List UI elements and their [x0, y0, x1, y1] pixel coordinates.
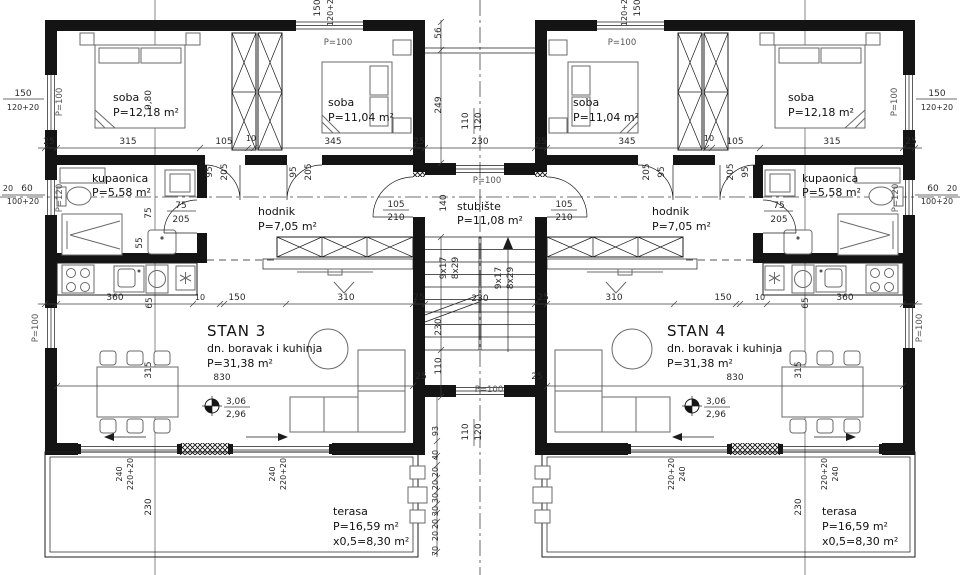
room-label-soba-right-outer: soba [788, 91, 814, 104]
dim-left-315: 315 [144, 361, 154, 378]
level-lower-left: 2,96 [226, 410, 246, 420]
room-area-soba-right-inner: P=11,04 m² [573, 111, 639, 124]
slider-size-left2-h: 220+20 [279, 458, 288, 490]
dim-top-l-105: 105 [215, 137, 232, 147]
dim-section-980: 9,80 [144, 90, 154, 110]
room-label-terasa-right: terasa [822, 505, 857, 518]
slider-size-right2-h: 220+20 [667, 458, 676, 490]
dim-830-right: 830 [726, 373, 743, 383]
apartment-desc-stan3: dn. boravak i kuhinja [207, 342, 322, 355]
room-area-stubiste: P=11,08 m² [457, 214, 523, 227]
dim-mid-r-360: 360 [836, 293, 853, 303]
dim-mid-r-65: 65 [801, 297, 811, 308]
door-label-bath-left-h: 205 [172, 215, 189, 225]
dim-stair-110: 110 [461, 112, 471, 129]
stair-steps-right-flight: 9x17 [494, 267, 504, 290]
dim-porch-70: 70 [431, 546, 440, 556]
elevation-marker-left [202, 396, 222, 416]
window-size-bed-right-w: 150 [928, 89, 945, 99]
room-half-terasa-right: x0,5=8,30 m² [822, 535, 898, 548]
dim-porch-30b: 30 [431, 506, 440, 516]
room-label-stubiste: stubište [457, 200, 501, 213]
dim-stair-v110: 110 [434, 357, 444, 374]
door-label-bed2-right-w: 95 [657, 166, 667, 177]
dim-mid-r-150: 150 [714, 293, 731, 303]
room-half-terasa-left: x0,5=8,30 m² [333, 535, 409, 548]
dim-mid-l-310: 310 [337, 293, 354, 303]
window-size-bed-left-h: 120+20 [7, 103, 39, 112]
door-label-entry-left-w: 105 [387, 200, 404, 210]
dim-stair-56: 56 [434, 27, 444, 39]
door-label-bed2-left-w: 95 [289, 166, 299, 177]
door-label-bath-right-w: 75 [773, 201, 784, 211]
door-label-bed1-left-w: 95 [205, 166, 215, 177]
window-label-top-left: P=100 [324, 38, 352, 48]
room-label-hodnik-right: hodnik [652, 205, 690, 218]
dim-edge-20-left: 20 [3, 184, 13, 193]
dim-mid-l-360: 360 [106, 293, 123, 303]
door-label-entry-right-w: 105 [555, 200, 572, 210]
dim-stair-v230: 230 [434, 318, 444, 335]
slider-size-right1-w: 240 [831, 466, 840, 481]
dim-porch-20c: 20 [431, 519, 440, 529]
slider-size-right1-h: 220+20 [820, 458, 829, 490]
room-label-kupaonica-right: kupaonica [802, 172, 858, 185]
room-area-soba-right-outer: P=12,18 m² [788, 106, 854, 119]
dim-top-l-25: 25 [43, 137, 54, 147]
window-size-top-right-w: 150 [633, 0, 643, 17]
room-label-soba-left-outer: soba [113, 91, 139, 104]
room-label-terasa-left: terasa [333, 505, 368, 518]
apartment-title-stan4: STAN 4 [667, 322, 726, 340]
level-lower-right: 2,96 [706, 410, 726, 420]
dim-stair-230-mid: 230 [471, 294, 488, 304]
floor-plan-canvas: soba P=12,18 m² soba P=11,04 m² soba P=1… [0, 0, 960, 575]
window-size-bath-right-w: 60 [927, 184, 939, 194]
dim-porch-20b: 20 [431, 480, 440, 490]
window-label-bath-left: P=120 [55, 184, 65, 212]
dim-mid-l-10: 10 [195, 293, 205, 302]
dim-mid-r-25: 25 [537, 293, 548, 303]
slider-size-left1-h: 220+20 [126, 458, 135, 490]
apartment-desc-stan4: dn. boravak i kuhinja [667, 342, 782, 355]
room-area-kupaonica-right: P=5,58 m² [802, 186, 861, 199]
dim-top-r-25b: 25 [905, 137, 916, 147]
floor-plan-drawing: soba P=12,18 m² soba P=11,04 m² soba P=1… [0, 0, 960, 575]
apartment-title-stan3: STAN 3 [207, 322, 266, 340]
room-area-soba-left-inner: P=11,04 m² [328, 111, 394, 124]
dim-right-terrace-230: 230 [794, 498, 804, 515]
dim-mid-r-10: 10 [755, 293, 765, 302]
dim-stair-230-top: 230 [471, 137, 488, 147]
dim-mid-r-310: 310 [605, 293, 622, 303]
window-label-stair-rear: P=100 [475, 385, 503, 395]
dim-porch-40: 40 [431, 450, 440, 460]
door-label-bed1-left-h: 205 [220, 163, 230, 180]
dim-top-r-25: 25 [535, 137, 546, 147]
window-size-bath-left-w: 60 [21, 184, 33, 194]
room-area-hodnik-right: P=7,05 m² [652, 220, 711, 233]
door-label-bed1-right-w: 95 [741, 166, 751, 177]
apartment-area-stan3: P=31,38 m² [207, 357, 273, 370]
room-label-hodnik-left: hodnik [258, 205, 296, 218]
slider-size-right2-w: 240 [678, 466, 687, 481]
dim-porch-win-110: 110 [461, 423, 471, 440]
dim-porch-20a: 20 [431, 467, 440, 477]
window-size-bath-left-h: 100+20 [7, 197, 39, 206]
window-size-bed-right-h: 120+20 [921, 103, 953, 112]
dim-mid-l-65: 65 [145, 297, 155, 308]
stair-rise-left-flight: 8x29 [451, 256, 461, 279]
apartment-area-stan4: P=31,38 m² [667, 357, 733, 370]
level-upper-left: 3,06 [226, 397, 246, 407]
room-label-soba-right-inner: soba [573, 96, 599, 109]
dim-top-r-315: 315 [823, 137, 840, 147]
window-label-stair-front: P=100 [473, 176, 501, 186]
dim-left-terrace-230: 230 [144, 498, 154, 515]
door-label-entry-left-h: 210 [387, 213, 404, 223]
dim-top-l-25b: 25 [413, 137, 424, 147]
slider-size-left2-w: 240 [268, 466, 277, 481]
elevation-marker-right [682, 396, 702, 416]
dim-mid-l-25: 25 [413, 293, 424, 303]
dim-top-l-315: 315 [119, 137, 136, 147]
door-label-bed2-right-h: 205 [642, 163, 652, 180]
dim-porch-93: 93 [431, 426, 440, 436]
stair-up-arrow [503, 237, 513, 249]
dim-top-l-10: 10 [246, 134, 256, 143]
door-label-bath-right-h: 205 [770, 215, 787, 225]
apartment-stan3-geometry [45, 20, 427, 557]
dim-stair-25-bl: 25 [415, 372, 426, 382]
dim-stair-249: 249 [434, 96, 444, 113]
dim-top-r-105: 105 [726, 137, 743, 147]
window-label-living-right: P=100 [915, 314, 925, 342]
dim-bath-55: 55 [135, 237, 145, 248]
stair-steps-left-flight: 9x17 [439, 257, 449, 280]
dim-edge-20-right: 20 [947, 184, 957, 193]
window-label-bed-left: P=100 [55, 88, 65, 116]
slider-size-left1-w: 240 [115, 466, 124, 481]
room-area-terasa-left: P=16,59 m² [333, 520, 399, 533]
dim-porch-win-120: 120 [474, 423, 484, 440]
window-label-bath-right: P=120 [891, 184, 901, 212]
room-label-kupaonica-left: kupaonica [92, 172, 148, 185]
room-label-soba-left-inner: soba [328, 96, 354, 109]
dim-bath-75: 75 [144, 207, 154, 218]
dim-stair-120: 120 [474, 112, 484, 129]
door-label-bed2-left-h: 205 [304, 163, 314, 180]
door-label-bed1-right-h: 205 [726, 163, 736, 180]
door-label-entry-right-h: 210 [555, 213, 572, 223]
dim-stair-25-br: 25 [531, 372, 542, 382]
window-label-living-left: P=100 [31, 314, 41, 342]
dim-porch-30a: 30 [431, 493, 440, 503]
dim-stair-140: 140 [439, 194, 449, 211]
room-area-hodnik-left: P=7,05 m² [258, 220, 317, 233]
dim-top-r-345: 345 [618, 137, 635, 147]
dim-right-315: 315 [794, 361, 804, 378]
dim-mid-l-150: 150 [228, 293, 245, 303]
window-size-bed-left-w: 150 [14, 89, 31, 99]
dim-top-l-345: 345 [324, 137, 341, 147]
window-label-top-right: P=100 [608, 38, 636, 48]
dim-830-left: 830 [213, 373, 230, 383]
dim-porch-20d: 20 [431, 531, 440, 541]
door-label-bath-left-w: 75 [175, 201, 186, 211]
window-size-top-left-w: 150 [313, 0, 323, 17]
window-size-bath-right-h: 100+20 [921, 197, 953, 206]
room-area-kupaonica-left: P=5,58 m² [92, 186, 151, 199]
room-area-terasa-right: P=16,59 m² [822, 520, 888, 533]
stair-rise-right-flight: 8x29 [506, 266, 516, 289]
window-size-top-right-h: 120+20 [620, 0, 629, 26]
level-upper-right: 3,06 [706, 397, 726, 407]
dim-top-r-10: 10 [704, 134, 714, 143]
window-label-bed-right: P=100 [890, 88, 900, 116]
window-size-top-left-h: 120+20 [326, 0, 335, 26]
